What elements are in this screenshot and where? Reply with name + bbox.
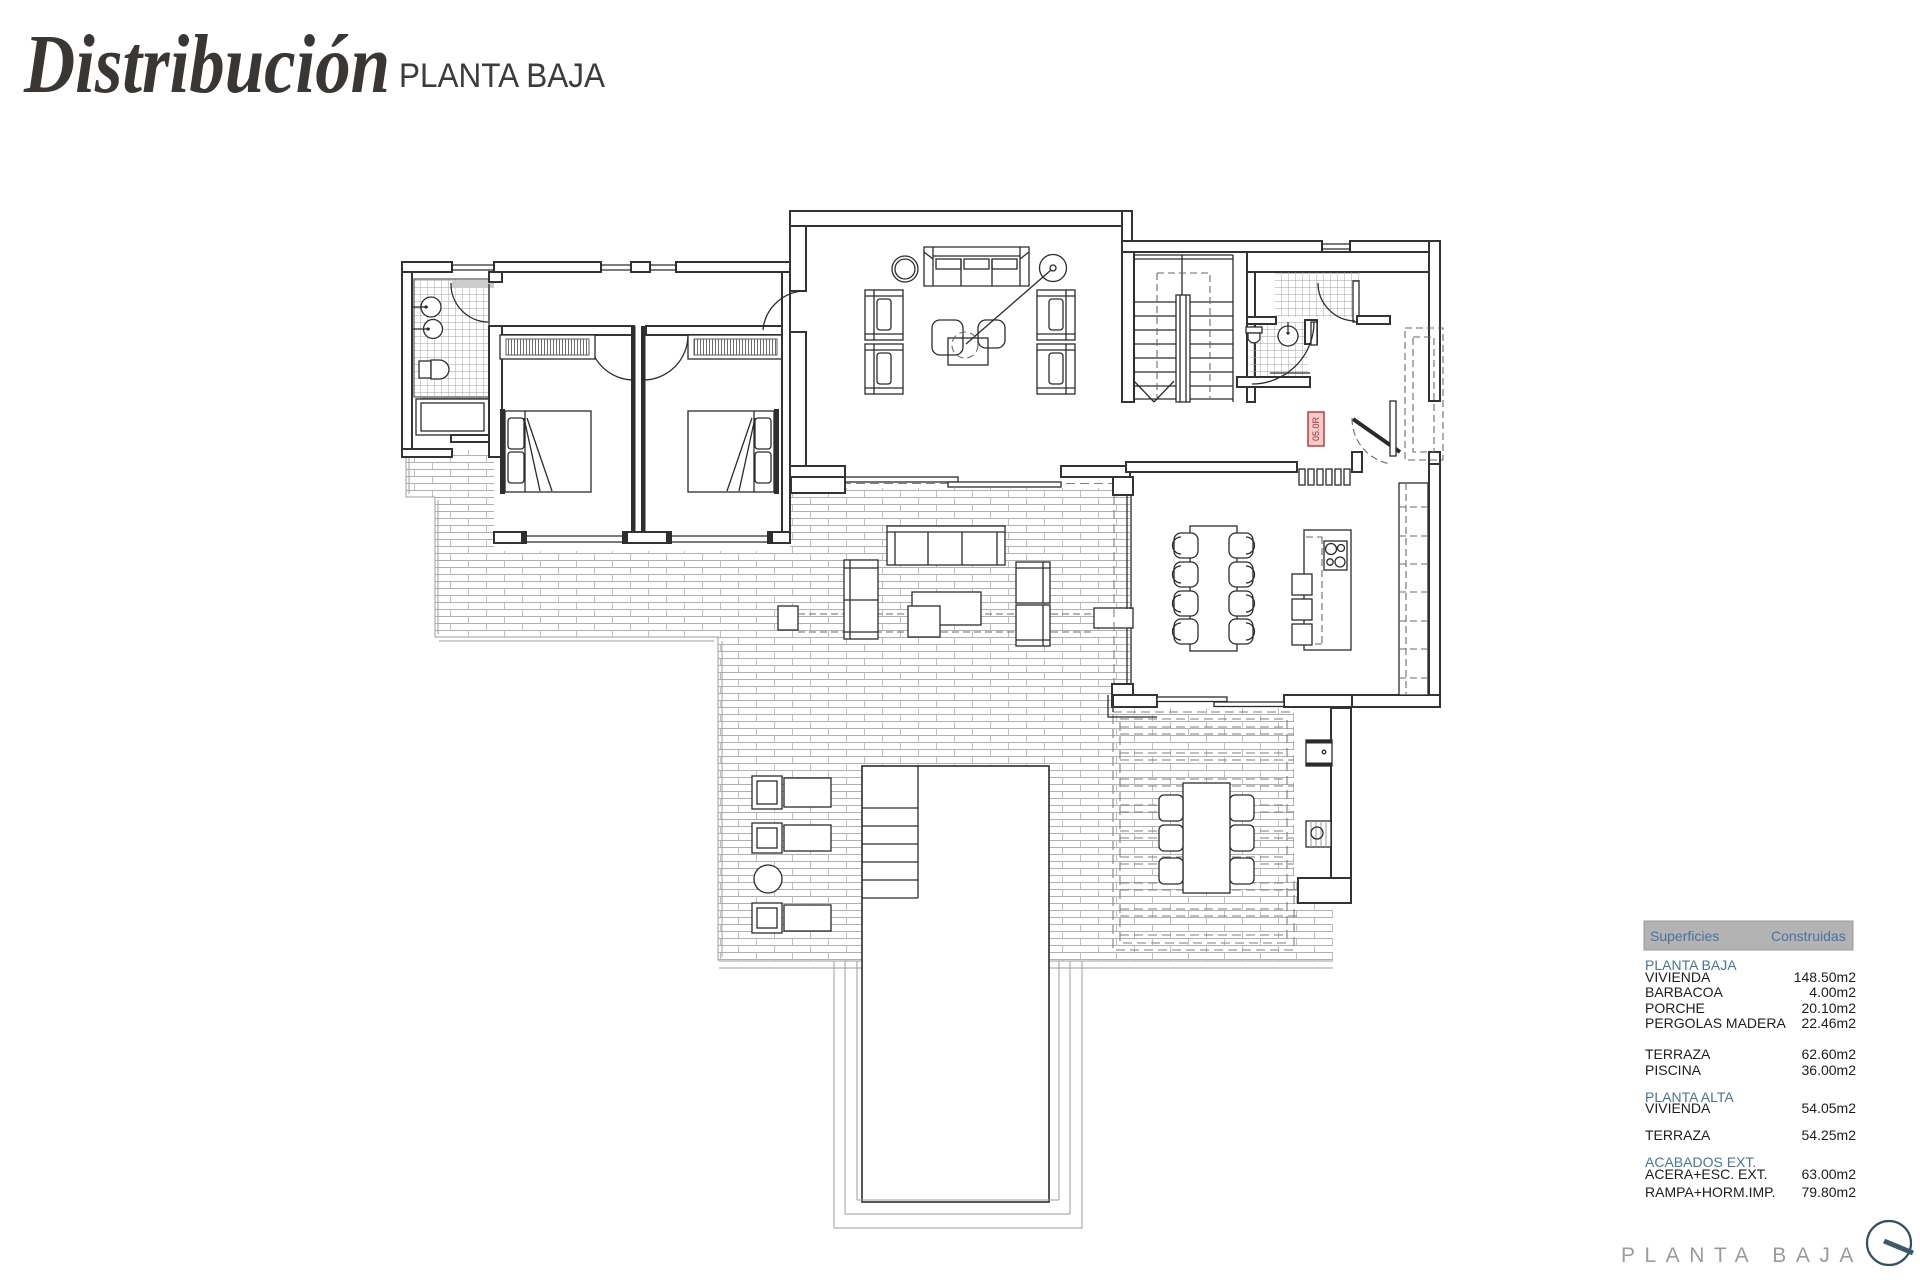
svg-text:PERGOLAS MADERA: PERGOLAS MADERA xyxy=(1645,1015,1786,1031)
svg-text:22.46m2: 22.46m2 xyxy=(1802,1015,1857,1031)
svg-text:4.00m2: 4.00m2 xyxy=(1809,984,1856,1000)
svg-text:VIVIENDA: VIVIENDA xyxy=(1645,1100,1711,1116)
svg-text:148.50m2: 148.50m2 xyxy=(1794,969,1856,985)
svg-text:PLANTA BAJA: PLANTA BAJA xyxy=(1621,1244,1863,1267)
svg-text:PORCHE: PORCHE xyxy=(1645,1000,1705,1016)
svg-text:BARBACOA: BARBACOA xyxy=(1645,984,1723,1000)
svg-text:05.0R: 05.0R xyxy=(1311,416,1321,441)
svg-text:TERRAZA: TERRAZA xyxy=(1645,1046,1711,1062)
svg-text:VIVIENDA: VIVIENDA xyxy=(1645,969,1711,985)
svg-text:62.60m2: 62.60m2 xyxy=(1802,1046,1857,1062)
svg-text:PISCINA: PISCINA xyxy=(1645,1062,1702,1078)
svg-text:RAMPA+HORM.IMP.: RAMPA+HORM.IMP. xyxy=(1645,1184,1776,1200)
svg-text:63.00m2: 63.00m2 xyxy=(1802,1166,1857,1182)
svg-text:79.80m2: 79.80m2 xyxy=(1802,1184,1857,1200)
svg-text:Superficies: Superficies xyxy=(1650,928,1719,944)
svg-text:PLANTA BAJA: PLANTA BAJA xyxy=(399,57,605,95)
svg-text:54.05m2: 54.05m2 xyxy=(1802,1100,1857,1116)
svg-text:TERRAZA: TERRAZA xyxy=(1645,1127,1711,1143)
svg-text:Construidas: Construidas xyxy=(1771,928,1846,944)
svg-text:20.10m2: 20.10m2 xyxy=(1802,1000,1857,1016)
svg-text:36.00m2: 36.00m2 xyxy=(1802,1062,1857,1078)
svg-text:ACERA+ESC. EXT.: ACERA+ESC. EXT. xyxy=(1645,1166,1768,1182)
svg-text:Distribución: Distribución xyxy=(23,18,390,111)
svg-text:54.25m2: 54.25m2 xyxy=(1802,1127,1857,1143)
